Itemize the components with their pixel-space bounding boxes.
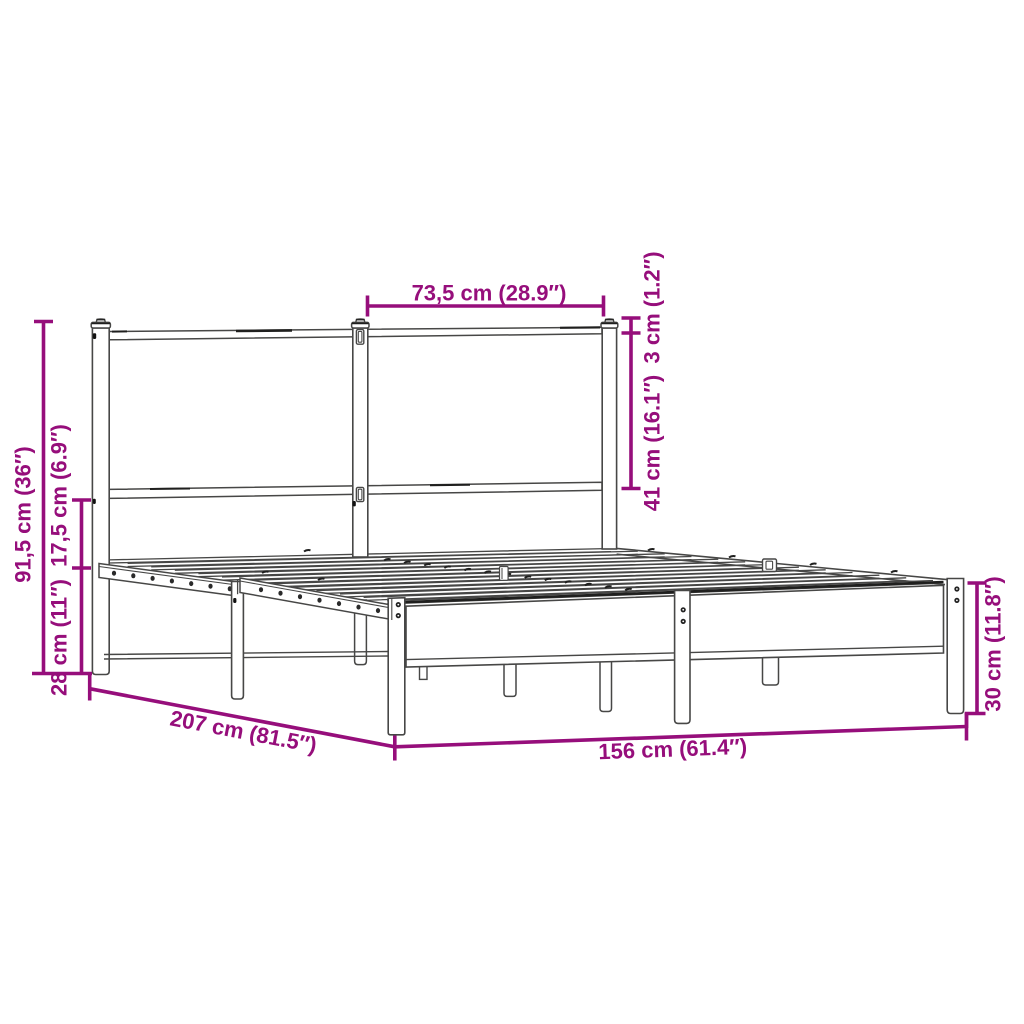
svg-text:28 cm (11″): 28 cm (11″) bbox=[47, 579, 72, 696]
svg-text:30 cm (11.8″): 30 cm (11.8″) bbox=[981, 576, 1006, 711]
svg-text:3 cm (1.2″): 3 cm (1.2″) bbox=[640, 251, 665, 363]
svg-text:207 cm (81.5″): 207 cm (81.5″) bbox=[168, 705, 319, 757]
svg-text:17,5 cm (6.9″): 17,5 cm (6.9″) bbox=[47, 424, 72, 567]
svg-text:91,5 cm (36″): 91,5 cm (36″) bbox=[11, 446, 36, 583]
svg-text:156 cm (61.4″): 156 cm (61.4″) bbox=[598, 734, 748, 764]
svg-text:73,5 cm (28.9″): 73,5 cm (28.9″) bbox=[412, 281, 567, 306]
svg-text:41 cm (16.1″): 41 cm (16.1″) bbox=[640, 375, 665, 512]
